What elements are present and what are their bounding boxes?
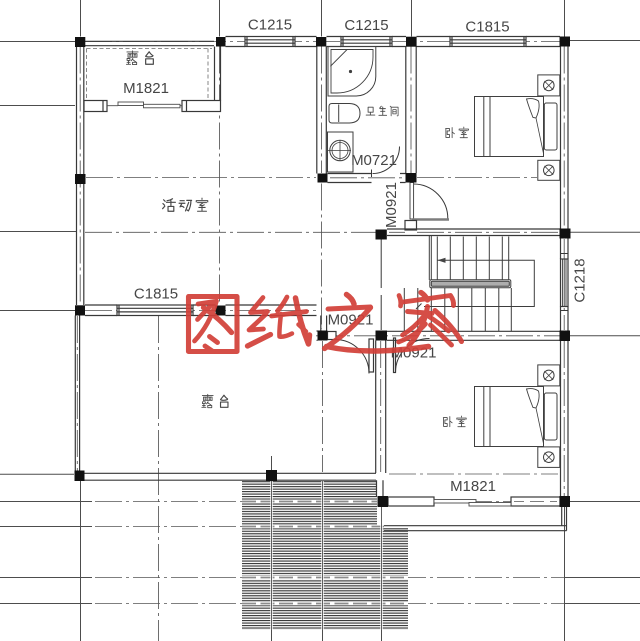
svg-text:C1215: C1215 (248, 17, 292, 34)
svg-text:C1815: C1815 (134, 286, 178, 303)
svg-text:M1821: M1821 (450, 478, 496, 495)
svg-text:C1218: C1218 (572, 258, 589, 302)
svg-text:M0921: M0921 (383, 182, 400, 228)
svg-text:C1815: C1815 (465, 19, 509, 36)
svg-text:M1821: M1821 (123, 80, 169, 97)
svg-text:C1215: C1215 (344, 17, 388, 34)
svg-text:M0721: M0721 (351, 152, 397, 169)
